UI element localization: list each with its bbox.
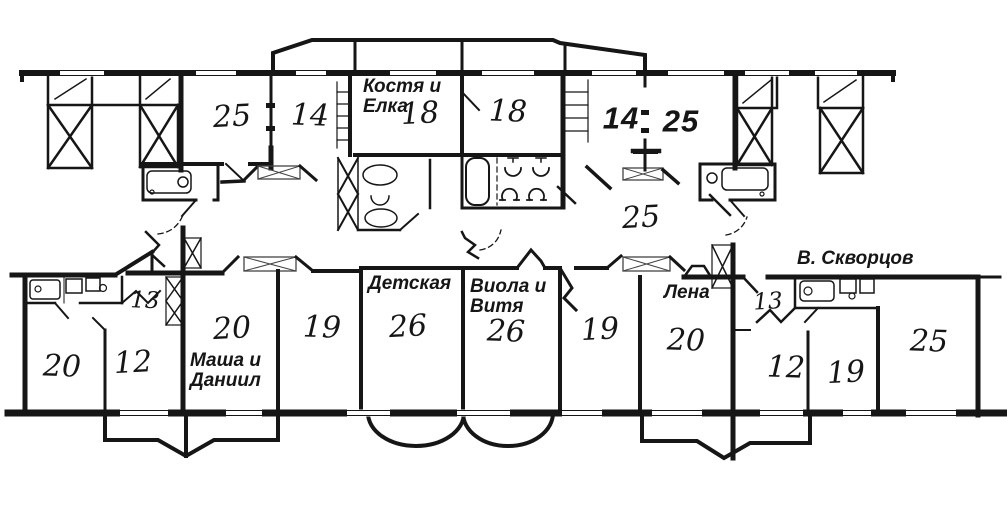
room-number: 13 [753, 289, 784, 315]
room-number: 20 [666, 324, 705, 357]
room-number: 20 [42, 350, 81, 383]
room-number: 26 [388, 310, 428, 344]
room-number: 19 [826, 356, 866, 390]
room-number: 26 [486, 315, 525, 348]
room-number: 12 [766, 351, 805, 384]
room-number: 12 [113, 346, 153, 380]
room-number: 25 [663, 106, 699, 139]
room-label-viola: Виола и Витя [470, 277, 546, 317]
room-label-detskaya: Детская [368, 274, 451, 294]
room-number: 18 [488, 95, 527, 128]
floor-plan: 25 14 18 18 14 25 25 20 12 13 20 19 26 2… [0, 0, 1007, 510]
room-label-kostya: Костя и Елка [363, 77, 441, 117]
room-number: 20 [212, 312, 252, 346]
room-number: 25 [909, 325, 948, 358]
room-label-lena: Лена [664, 283, 710, 303]
room-number: 13 [130, 288, 160, 313]
room-label-skvortsov: В. Скворцов [797, 249, 913, 269]
room-number: 25 [212, 100, 252, 134]
room-number: 14 [603, 103, 639, 136]
room-number: 19 [580, 313, 620, 347]
room-number: 14 [290, 99, 329, 132]
room-number: 19 [302, 311, 341, 344]
room-number: 25 [621, 201, 661, 235]
room-label-masha: Маша и Даниил [190, 351, 261, 391]
